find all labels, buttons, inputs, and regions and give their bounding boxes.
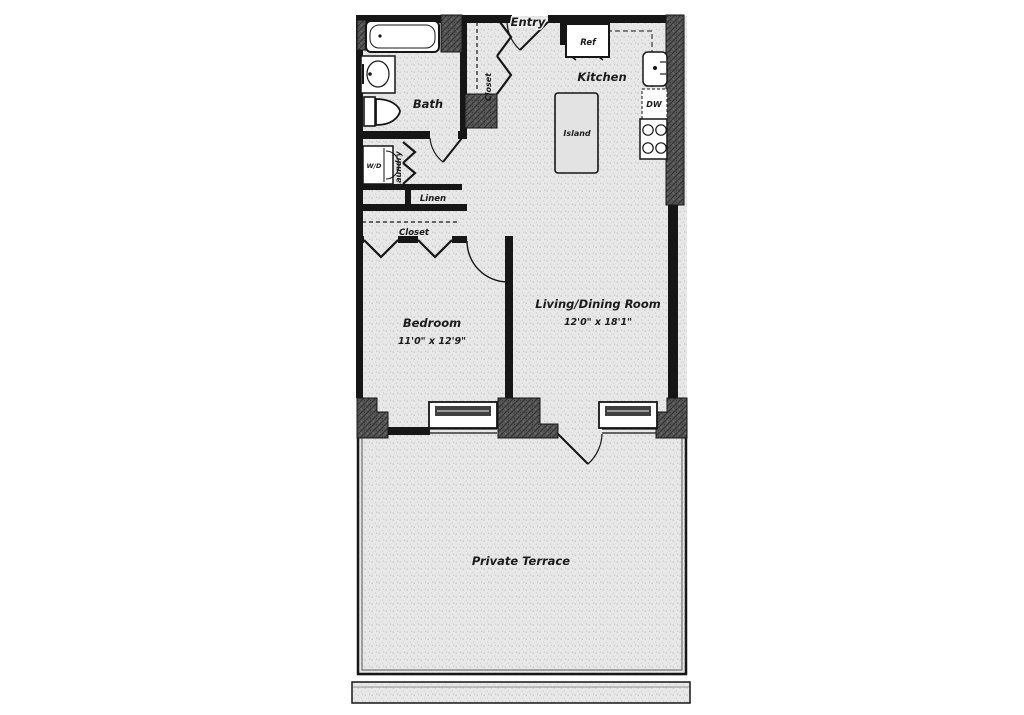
floor-plan-page: Entry Closet Kitchen Ref Island DW Bath … xyxy=(0,0,1024,715)
entry-label: Entry xyxy=(511,15,546,29)
bedroom-window xyxy=(429,402,497,433)
terrace-planter-strip xyxy=(352,682,690,703)
living-dining-dimensions: 12'0" x 18'1" xyxy=(564,317,632,328)
wall-closet-top xyxy=(356,204,467,211)
kitchen-sink xyxy=(643,52,667,86)
pier-kitchen-right xyxy=(666,15,684,205)
stove xyxy=(640,119,667,159)
pier-bath-tub xyxy=(441,15,462,52)
wall-bedroom-top-3 xyxy=(452,236,467,243)
terrace-label: Private Terrace xyxy=(472,554,570,568)
entry-closet-label: Closet xyxy=(484,72,493,101)
pier-left-top xyxy=(357,20,366,50)
bath-label: Bath xyxy=(413,97,443,111)
bedroom-label: Bedroom xyxy=(403,316,461,330)
wall-bath-bottom-stub xyxy=(458,131,467,139)
wall-linen-top xyxy=(405,184,462,190)
wall-top-right xyxy=(548,15,684,23)
wall-bedroom-top-1 xyxy=(356,236,364,243)
kitchen-label: Kitchen xyxy=(577,70,626,84)
living-room-window xyxy=(599,402,657,433)
wall-bottom-bedroom xyxy=(386,427,430,435)
bathtub xyxy=(366,21,439,52)
living-dining-label: Living/Dining Room xyxy=(535,297,660,311)
wall-bath-bottom xyxy=(356,131,430,139)
island-label: Island xyxy=(563,129,591,138)
dishwasher-label: DW xyxy=(646,100,663,109)
refrigerator-label: Ref xyxy=(580,38,597,48)
wall-bedroom-living-divider xyxy=(505,236,513,398)
wall-right xyxy=(668,203,678,398)
bedroom-dimensions: 11'0" x 12'9" xyxy=(398,336,466,347)
linen-label: Linen xyxy=(420,194,446,204)
floor-plan: Entry Closet Kitchen Ref Island DW Bath … xyxy=(0,0,1024,715)
washer-dryer-label: W/D xyxy=(367,162,383,170)
bedroom-closet-label: Closet xyxy=(399,228,430,238)
bathroom-sink xyxy=(361,56,395,93)
laundry-label: Laundry xyxy=(394,150,403,188)
